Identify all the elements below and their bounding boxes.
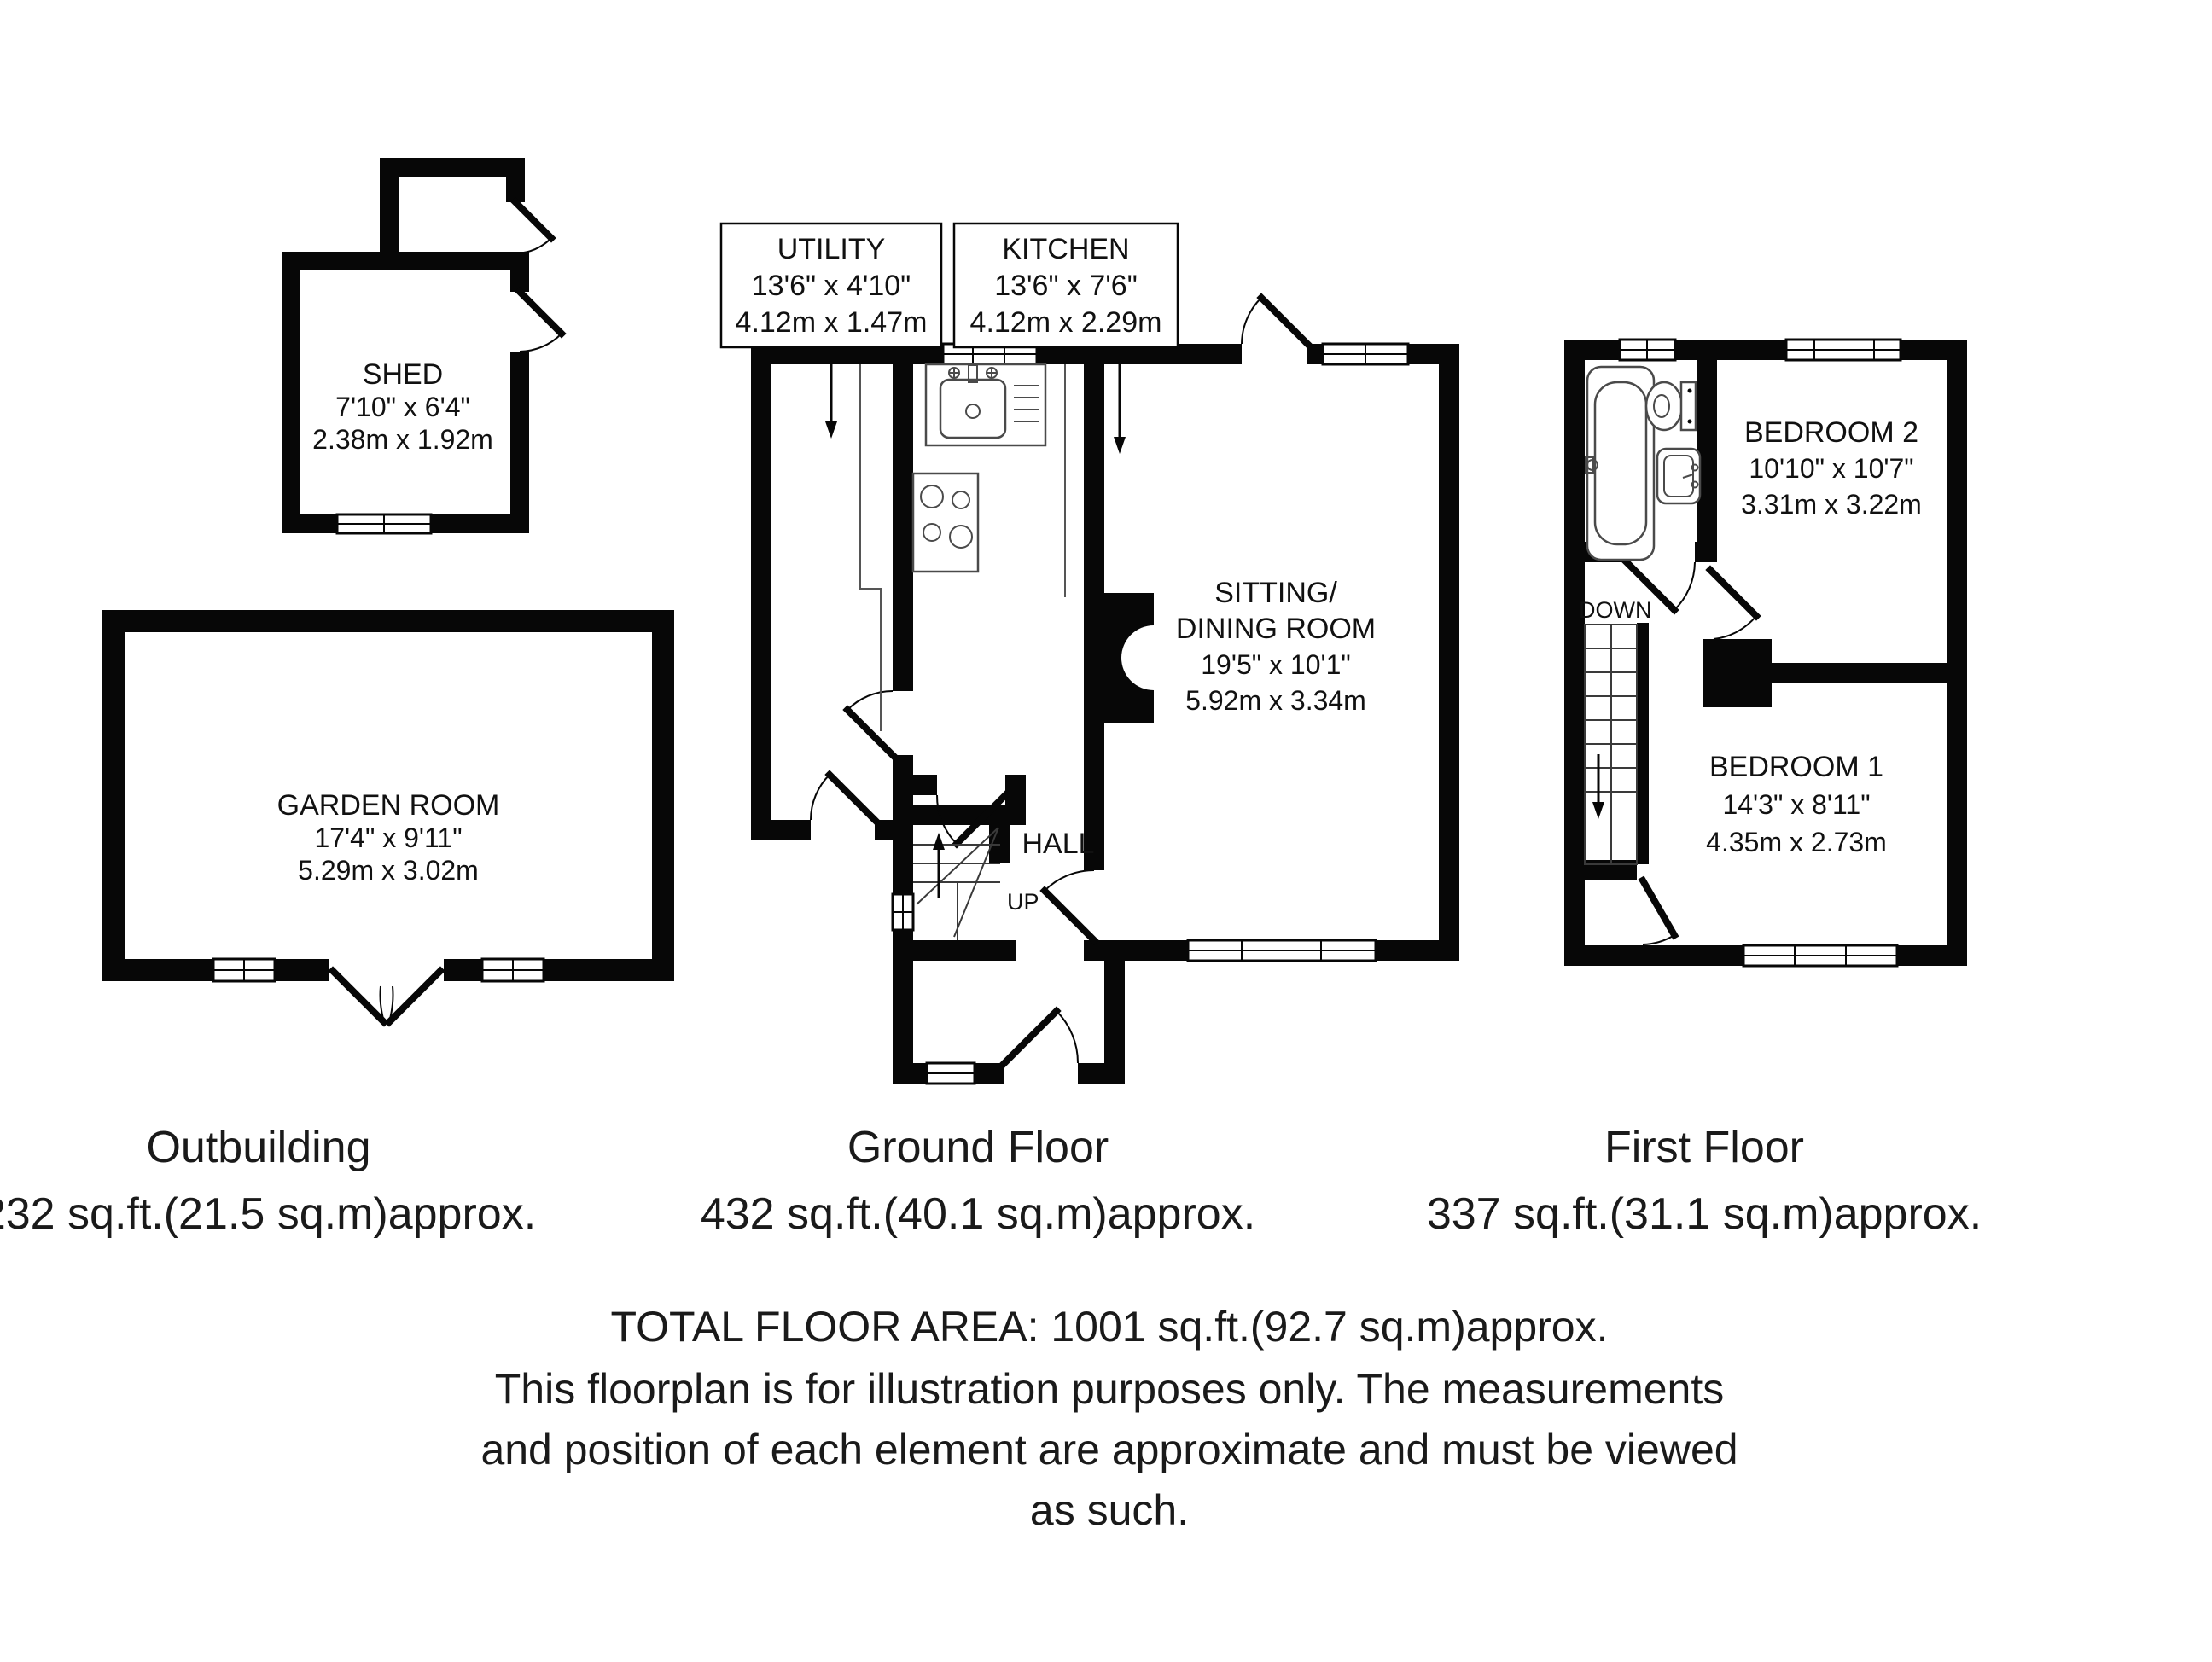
bathroom-window (1620, 340, 1675, 360)
bedroom-2-size-imperial: 10'10" x 10'7" (1749, 453, 1913, 484)
garden-room-name: GARDEN ROOM (277, 789, 500, 822)
bedroom-2-name: BEDROOM 2 (1744, 416, 1918, 449)
utility-inner-door (847, 691, 893, 755)
utility-size-metric: 4.12m x 1.47m (736, 306, 928, 339)
stair-side-window (893, 894, 913, 930)
ground-floor-chimney-breast (1084, 593, 1154, 723)
back-door (1242, 298, 1307, 344)
shed-label: SHED 7'10" x 6'4" 2.38m x 1.92m (312, 358, 493, 455)
first-floor-chimney-breast (1703, 639, 1772, 707)
utility-name: UTILITY (777, 233, 886, 265)
disclaimer-line3: as such. (1030, 1486, 1189, 1534)
kitchen-hob (913, 474, 978, 572)
front-door (1004, 1011, 1078, 1063)
bathtub (1586, 367, 1654, 560)
kitchen-label-arrowhead (1114, 437, 1126, 454)
footer-text: TOTAL FLOOR AREA: 1001 sq.ft.(92.7 sq.m)… (480, 1303, 1738, 1534)
sitting-dining-label: SITTING/ DINING ROOM 19'5" x 10'1" 5.92m… (1176, 577, 1376, 716)
plan-captions: Outbuilding 232 sq.ft.(21.5 sq.m)approx.… (0, 1123, 1982, 1239)
outbuilding-caption-area: 232 sq.ft.(21.5 sq.m)approx. (0, 1189, 536, 1239)
garden-room-size-metric: 5.29m x 3.02m (298, 855, 479, 886)
ground-floor-stairs: UP (913, 828, 1039, 940)
kitchen-size-metric: 4.12m x 2.29m (970, 306, 1162, 339)
first-floor-caption-area: 337 sq.ft.(31.1 sq.m)approx. (1427, 1189, 1982, 1239)
shed-size-imperial: 7'10" x 6'4" (335, 392, 470, 422)
bedroom-1-name: BEDROOM 1 (1709, 751, 1883, 783)
floorplan-canvas: SHED 7'10" x 6'4" 2.38m x 1.92m (0, 0, 2212, 1662)
hall-label: HALL (1022, 828, 1094, 860)
ground-floor-plan: UP UTILITY 13'6" x 4'10" 4.12m x 1.47m K… (721, 224, 1459, 1084)
kitchen-name: KITCHEN (1002, 233, 1129, 265)
utility-label-arrowhead (825, 421, 837, 439)
bedroom-1-door (1643, 880, 1674, 944)
porch-window (927, 1063, 975, 1084)
bedroom-2-door (1710, 570, 1756, 639)
stairs-down-label: DOWN (1579, 597, 1651, 623)
shed-size-metric: 2.38m x 1.92m (312, 424, 493, 455)
bedroom-2-label: BEDROOM 2 10'10" x 10'7" 3.31m x 3.22m (1741, 416, 1922, 520)
utility-counter-line (860, 364, 881, 731)
outbuilding-plan: SHED 7'10" x 6'4" 2.38m x 1.92m (102, 158, 674, 1022)
bedroom-1-size-metric: 4.35m x 2.73m (1706, 827, 1887, 857)
garden-room-label: GARDEN ROOM 17'4" x 9'11" 5.29m x 3.02m (277, 789, 500, 886)
utility-size-imperial: 13'6" x 4'10" (752, 270, 911, 302)
up-arrowhead (933, 833, 945, 850)
ground-floor-caption-title: Ground Floor (847, 1123, 1109, 1172)
ground-floor-caption-area: 432 sq.ft.(40.1 sq.m)approx. (701, 1189, 1255, 1239)
sitting-dining-name-line2: DINING ROOM (1176, 613, 1376, 645)
sitting-dining-size-imperial: 19'5" x 10'1" (1201, 649, 1351, 680)
garden-room-window-left (213, 959, 275, 981)
garden-room-window-right (482, 959, 544, 981)
disclaimer-line1: This floorplan is for illustration purpo… (495, 1365, 1724, 1413)
sitting-room-bottom-window (1188, 940, 1376, 961)
garden-room-size-imperial: 17'4" x 9'11" (314, 822, 462, 853)
bedroom-1-size-imperial: 14'3" x 8'11" (1722, 789, 1870, 820)
bedroom-1-window (1743, 945, 1897, 966)
floorplan-page: { "page": { "background": "#ffffff", "in… (0, 0, 2212, 1662)
sitting-dining-size-metric: 5.92m x 3.34m (1185, 685, 1366, 716)
shed-door (520, 292, 562, 352)
stairs-up-label: UP (1007, 889, 1039, 915)
shed-porch-door (515, 202, 551, 253)
sitting-dining-name-line1: SITTING/ (1214, 577, 1337, 609)
bedroom-2-window (1786, 340, 1901, 360)
outbuilding-caption-title: Outbuilding (146, 1123, 370, 1172)
kitchen-size-imperial: 13'6" x 7'6" (994, 270, 1138, 302)
garden-room-french-doors (333, 971, 440, 1022)
first-floor-plan: DOWN BEDROOM 2 10'10" x 10'7" 3.31m x 3.… (1564, 340, 1967, 966)
bedroom-2-size-metric: 3.31m x 3.22m (1741, 489, 1922, 520)
total-floor-area: TOTAL FLOOR AREA: 1001 sq.ft.(92.7 sq.m)… (611, 1303, 1609, 1351)
toilet (1646, 382, 1696, 430)
down-arrowhead (1592, 802, 1604, 819)
washbasin (1657, 449, 1700, 503)
disclaimer-line2: and position of each element are approxi… (480, 1426, 1738, 1473)
utility-door (811, 775, 875, 820)
shed-window (337, 514, 431, 533)
shed-porch-walls (380, 158, 525, 253)
shed-name: SHED (363, 358, 443, 391)
sitting-room-top-window (1323, 344, 1408, 364)
kitchen-sink-unit (926, 364, 1045, 445)
sitting-room-door (1045, 870, 1094, 940)
first-floor-caption-title: First Floor (1604, 1123, 1804, 1172)
bedroom-1-label: BEDROOM 1 14'3" x 8'11" 4.35m x 2.73m (1706, 751, 1887, 857)
